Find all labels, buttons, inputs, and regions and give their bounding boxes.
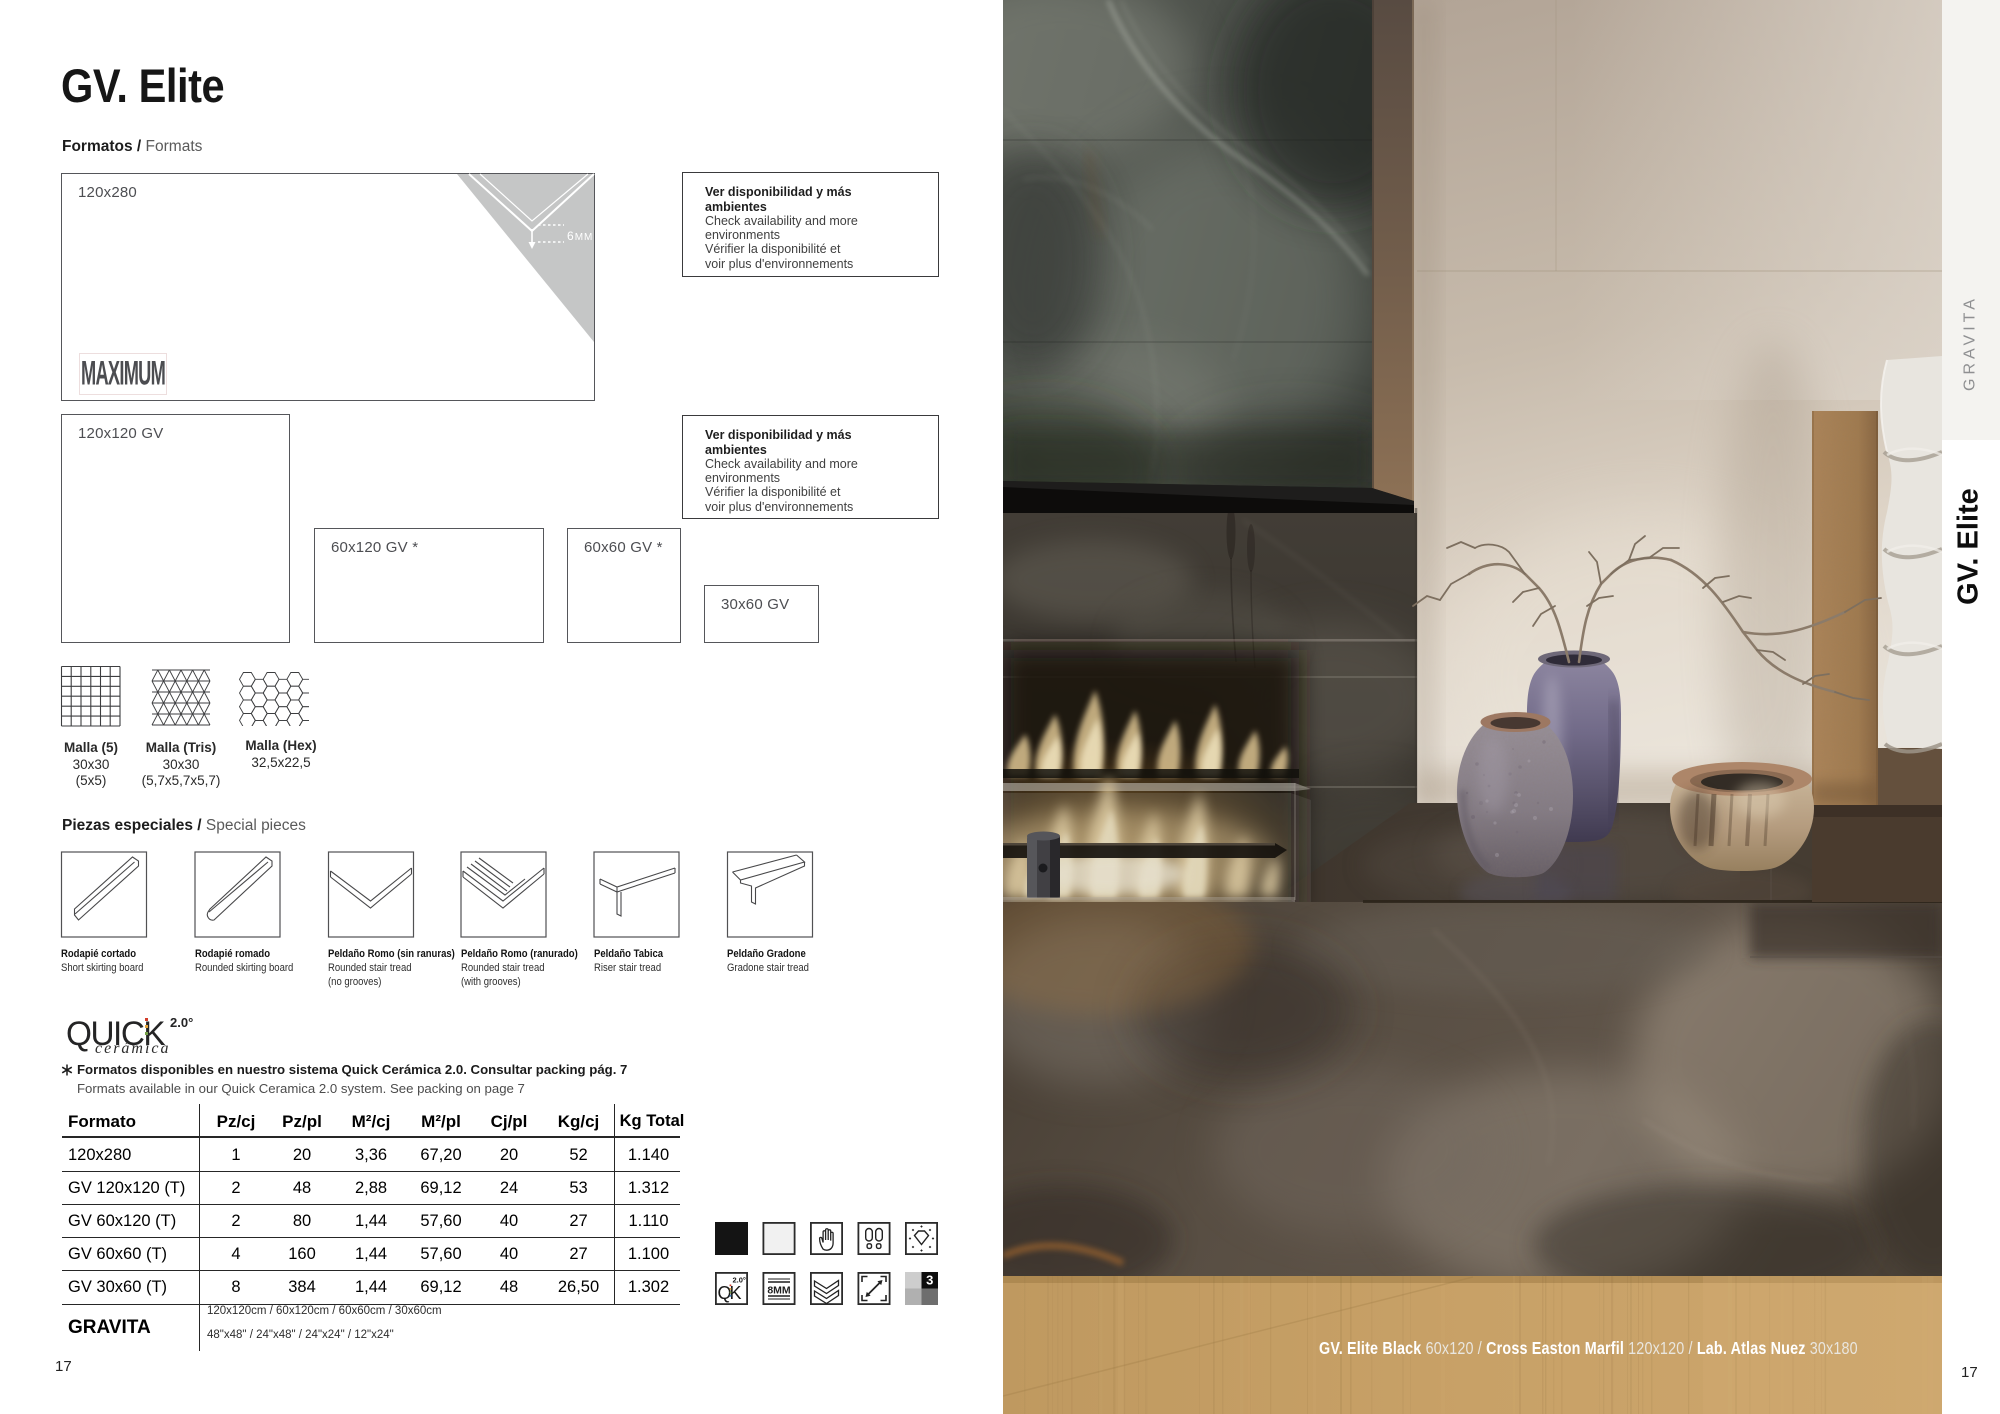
svg-text:2.0°: 2.0° bbox=[733, 1276, 746, 1285]
svg-text:6MM: 6MM bbox=[567, 229, 593, 243]
svg-text:K: K bbox=[730, 1283, 742, 1303]
svg-text:8MM: 8MM bbox=[767, 1285, 791, 1297]
svg-text:3: 3 bbox=[926, 1273, 933, 1288]
